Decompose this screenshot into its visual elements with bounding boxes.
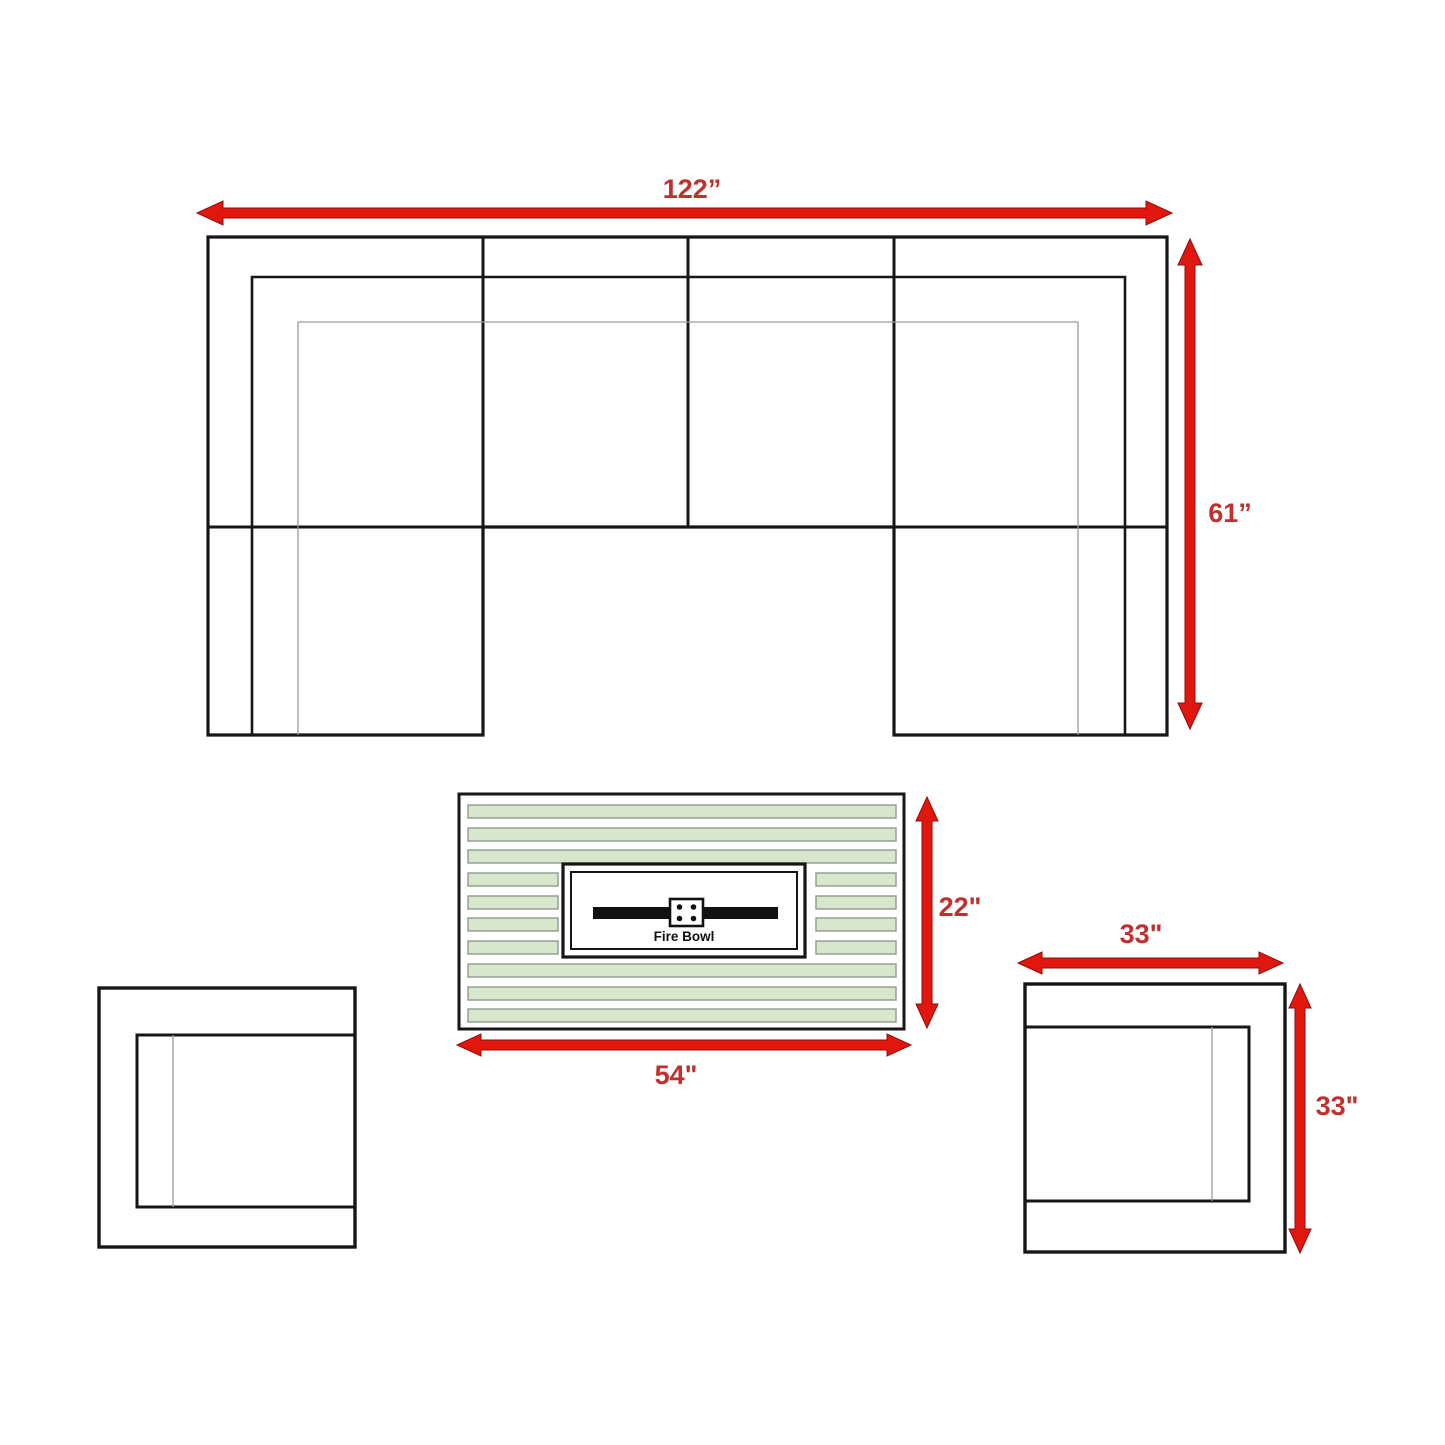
sofa-depth-dimension-arrow (1178, 239, 1202, 729)
table-slat (816, 918, 896, 931)
fire-table-depth-dimension-arrow (916, 797, 938, 1028)
diagram-canvas: 122” 61” (0, 0, 1445, 1445)
right-chair-depth-dimension-label: 33" (1316, 1091, 1359, 1121)
fire-table-width-dimension-label: 54" (655, 1060, 698, 1090)
club-chair-right: 33" 33" (1018, 919, 1358, 1253)
fire-table-depth-dimension-label: 22" (939, 892, 982, 922)
table-slat (468, 987, 896, 1000)
fire-bowl-label: Fire Bowl (654, 929, 715, 944)
table-slat (468, 1009, 896, 1022)
table-slat (468, 896, 558, 909)
table-slat (468, 828, 896, 841)
fire-pit-table: Fire Bowl 22" 54" (457, 794, 981, 1090)
table-slat (468, 964, 896, 977)
right-chair-outer-outline (1025, 984, 1285, 1252)
table-slat (468, 873, 558, 886)
sofa-width-dimension-arrow (197, 201, 1172, 225)
table-slat (468, 850, 896, 863)
sofa-depth-dimension-label: 61” (1208, 498, 1252, 528)
right-chair-width-dimension-arrow (1018, 952, 1283, 974)
table-slat (816, 896, 896, 909)
club-chair-left (99, 988, 355, 1247)
table-slat (816, 873, 896, 886)
table-slat (468, 805, 896, 818)
furniture-dimension-diagram: 122” 61” (0, 0, 1445, 1445)
right-chair-depth-dimension-arrow (1289, 984, 1311, 1253)
burner-igniter-icon (670, 899, 703, 926)
sofa-width-dimension-label: 122” (663, 174, 722, 204)
table-slat (468, 941, 558, 954)
sectional-sofa: 122” 61” (197, 174, 1252, 735)
table-slat (816, 941, 896, 954)
table-slat (468, 918, 558, 931)
right-chair-width-dimension-label: 33" (1120, 919, 1163, 949)
fire-table-width-dimension-arrow (457, 1034, 911, 1056)
